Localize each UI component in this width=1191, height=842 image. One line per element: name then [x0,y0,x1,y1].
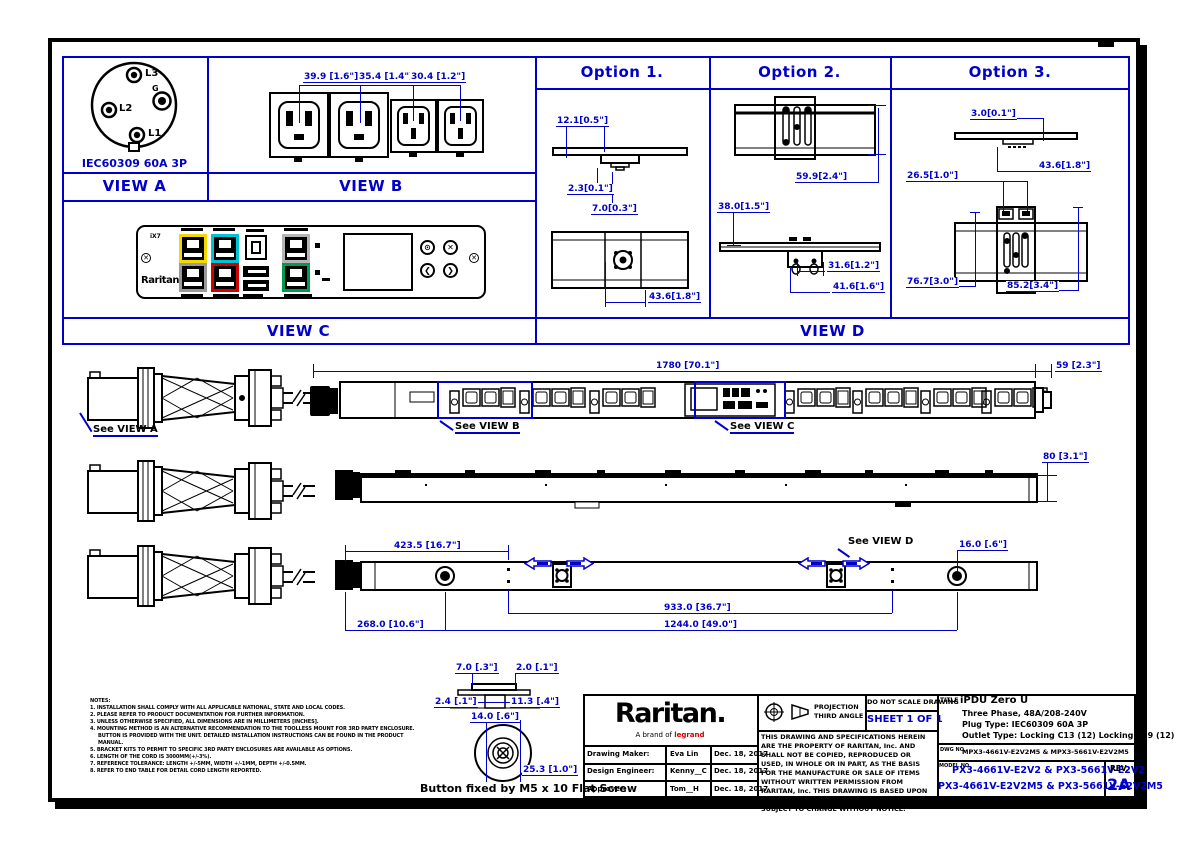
third-angle-projection-icon [764,700,812,724]
approver-label: Approver: [587,785,626,793]
dim-btn-3: 2.4 [.1"] [434,697,478,708]
dim-o3-5: 85.2[3.4"] [1006,281,1059,292]
port-label-bar [213,228,235,231]
panel-tag: iX7 [150,233,161,240]
disclaimer-text: THIS DRAWING AND SPECIFICATIONS HEREIN A… [761,733,935,797]
rev-value: 2A [1107,775,1131,794]
dim-line [970,212,980,213]
dim-line [508,590,509,613]
table-line [535,88,1130,90]
dim-btn-6: 25.3 [1.0"] [522,765,578,776]
table-line [890,56,892,317]
brand-subline: A brand of legrand [583,731,757,739]
dim-o1-1: 12.1[0.5"] [556,116,609,127]
unlock-arrow-icon [798,557,826,570]
approver-value: Tom__H [670,785,699,793]
design-engineer-date: Dec. 18, 2017 [714,767,768,775]
port-label-bar [284,294,312,297]
option2-header: Option 2. [709,58,890,86]
dim-line [345,630,957,631]
dim-end-cap: 59 [2.3"] [1055,361,1102,372]
dim-btn-1: 7.0 [.3"] [455,663,499,674]
port-label-bar [243,294,263,297]
dim-line [566,126,567,158]
sensor-port [211,234,239,263]
title-spec-plug: Plug Type: IEC60309 60A 3P [962,720,1088,729]
dim-line [605,302,645,303]
dim-line [727,245,741,246]
dim-line [797,262,798,276]
rj45-icon [285,266,307,289]
dim-line [997,147,998,172]
port-label-bar [213,294,239,297]
rev-label: REV. [1110,764,1129,773]
title-block-line [865,710,937,712]
note-line: 4. MOUNTING METHOD IS AN ALTERNATIVE REC… [90,726,420,733]
dim-line [878,108,879,183]
dim-line [445,592,446,630]
dim-line [345,545,346,562]
title-block-line [937,760,1136,762]
dim-line [997,171,1038,172]
feature-port [211,263,239,292]
notes-title: NOTES: [90,698,420,705]
title-block-line [710,745,712,798]
option1-header: Option 1. [535,58,709,86]
corner-mark [1098,41,1114,47]
dim-line [515,673,516,685]
pin-l2-label: L2 [119,103,132,114]
title-block-line [937,743,1136,745]
title-label: TITLE [940,697,958,704]
sheet-number: SHEET 1 OF 1 [867,714,937,725]
title-block-line [665,745,667,798]
view-d-label: VIEW D [535,319,1130,343]
dim-line [1073,207,1083,208]
see-view-d-callout: See VIEW D [848,536,913,547]
note-line: 5. BRACKET KITS TO PERMIT TO SPECIFIC 3R… [90,747,420,754]
pin-l3-label: L3 [145,68,158,79]
dim-outlet-pitch-3: 30.4 [1.2"] [410,72,466,83]
see-view-c-callout: See VIEW C [730,421,794,434]
drawing-maker-date: Dec. 18, 2017 [714,750,768,758]
title-block-line [583,780,759,782]
notes-block: NOTES: 1. INSTALLATION SHALL COMPLY WITH… [90,698,420,775]
pdu-top-view-drawing [335,462,1051,510]
rj45-icon [214,237,236,260]
note-line: BUTTON IS PROVIDED WITH THE UNIT. DETAIL… [98,733,420,747]
dim-line [1078,207,1079,291]
dim-line [472,673,473,685]
dim-line [957,550,958,572]
dim-line [299,85,460,86]
rj45-icon [182,266,204,289]
legrand-logo: legrand [674,731,704,739]
port-label-bar [284,228,308,231]
outlets-drawing [269,88,485,164]
dim-line [868,105,886,106]
drawing-title: iPDU Zero U [960,695,1028,706]
approver-date: Dec. 18, 2017 [714,785,768,793]
dim-total-length: 1780 [70.1"] [655,361,720,372]
usb-a-port [243,266,269,277]
dim-line [360,85,361,123]
note-line: 8. REFER TO END TABLE FOR DETAIL CORD LE… [90,768,420,775]
pin-g-label: G [152,84,159,93]
see-view-b-highlight [437,381,533,419]
dim-line [299,85,300,123]
dim-line [486,720,487,782]
dim-line [1027,181,1028,211]
dim-o2-2: 38.0[1.5"] [717,202,770,213]
panel-left-button: ❮ [420,263,435,278]
lock-arrow-icon [842,557,870,570]
dim-line [597,168,598,183]
dim-line [345,592,346,630]
unlock-arrow-icon [524,557,552,570]
plug-assembly-drawing [85,455,315,527]
dim-1244: 1244.0 [49.0"] [663,620,738,631]
dim-o1-4: 43.6[1.8"] [648,292,701,303]
no-scale-label: DO NOT SCALE DRAWING [867,698,937,706]
rj45-icon [285,237,307,260]
dim-line [508,545,509,560]
dim-button-offset: 16.0 [.6"] [958,540,1008,551]
dim-o1-2: 2.3[0.1"] [567,184,614,195]
dim-line [645,290,646,307]
dim-o2-1: 59.9[2.4"] [795,172,848,183]
rj45-icon [182,237,204,260]
see-view-a-callout: See VIEW A [93,424,158,437]
option3-header: Option 3. [890,58,1130,86]
plug-assembly-drawing [85,540,315,612]
table-line [535,56,537,345]
dim-line [605,262,606,307]
dim-line [790,292,830,293]
view-c-label: VIEW C [62,319,535,343]
brand-subline-prefix: A brand of [635,731,671,739]
dim-o2-3: 31.6[1.2"] [827,261,880,272]
dim-depth: 80 [3.1"] [1042,452,1089,463]
screw-icon: ✕ [141,253,151,263]
port-label-bar [181,294,203,297]
title-spec-phase: Three Phase, 48A/208-240V [962,709,1087,718]
dim-line [1043,118,1044,141]
dim-outlet-pitch-1: 39.9 [1.6"] [303,72,359,83]
dim-line [313,364,314,378]
design-engineer-value: Kenny__C [670,767,707,775]
iec60309-plug-face-drawing [90,60,190,160]
usb-b-port [245,235,267,260]
title-block-line [757,730,937,732]
dim-btn-4: 11.3 [.4"] [510,697,560,708]
dim-line [1047,462,1048,502]
port-label-bar [322,278,330,281]
led-indicator [315,270,320,275]
title-block-line [583,763,759,765]
dim-line [892,590,893,613]
view-a-caption: IEC60309 60A 3P [62,155,207,171]
port-label-bar [181,228,203,231]
dim-line [476,702,511,703]
title-spec-outlet: Outlet Type: Locking C13 (12) Locking C1… [962,731,1174,740]
dim-line [957,181,1027,182]
dim-o3-1: 3.0[0.1"] [970,109,1017,120]
dim-o3-4: 76.7[3.0"] [906,277,959,288]
dim-line [460,85,461,121]
pin-l1-label: L1 [148,128,161,139]
dim-line [1051,364,1052,378]
pdu-front-view-drawing [310,378,1055,424]
note-line: 3. UNLESS OTHERWISE SPECIFIED, ALL DIMEN… [90,719,420,726]
port-label-bar [246,229,264,232]
dim-line [413,85,414,121]
note-line: 1. INSTALLATION SHALL COMPLY WITH ALL AP… [90,705,420,712]
pdu-rear-view-drawing [335,556,1051,596]
dim-line [1035,371,1051,372]
drawing-sheet: VIEW A VIEW B VIEW C VIEW D Option 1. Op… [0,0,1191,842]
projection-label-2: THIRD ANGLE [814,712,863,720]
led-indicator [315,243,320,248]
dim-btn-2: 2.0 [.1"] [515,663,559,674]
lcd-display [343,233,413,291]
dim-o3-3: 26.5[1.0"] [906,171,959,182]
dim-line [823,262,824,276]
note-line: 2. PLEASE REFER TO PRODUCT DOCUMENTATION… [90,712,420,719]
drawing-maker-label: Drawing Maker: [587,750,649,758]
title-block-line [583,745,759,747]
panel-brand-logo: Raritan [141,275,179,286]
table-line [709,56,711,317]
dim-line [868,154,886,155]
dim-line [1003,181,1004,211]
dim-line [733,212,734,246]
panel-right-button: ❯ [443,263,458,278]
view-a-label: VIEW A [62,174,207,198]
lock-arrow-icon [566,557,594,570]
rj45-icon [214,266,236,289]
note-line: 7. REFERENCE TOLERANCE: LENGTH +/-5MM, W… [90,761,420,768]
dim-line [520,720,521,782]
dim-outlet-pitch-2: 35.4 [1.4"] [358,72,414,83]
table-line [62,200,535,202]
dim-btn-5: 14.0 [.6"] [470,712,520,723]
dwg-no-value: MPX3-4661V-E2V2M5 & MPX3-5661V-E2V2M5 [962,748,1129,756]
dim-o3-2: 43.6[1.8"] [1038,161,1091,172]
dim-line [790,267,791,293]
drawing-maker-value: Eva Lin [670,750,698,758]
panel-menu-button: ⊙ [420,240,435,255]
ethernet-port [179,234,207,263]
ethernet-port [179,263,207,292]
panel-cancel-button: ✕ [443,240,458,255]
dim-o2-4: 41.6[1.6"] [832,282,885,293]
see-view-b-callout: See VIEW B [455,421,520,434]
dim-line [975,212,976,287]
usb-a-port [243,280,269,291]
usb-b-icon [251,241,261,254]
dim-line [604,126,605,152]
expansion-port [282,263,310,292]
dim-268: 268.0 [10.6"] [356,620,425,631]
see-view-c-highlight [694,381,786,419]
projection-label-1: PROJECTION [814,703,859,711]
dim-line [848,182,878,183]
console-port [282,234,310,263]
view-b-label: VIEW B [207,174,535,198]
dim-line [957,592,958,630]
screw-icon: ✕ [469,253,479,263]
dim-423: 423.5 [16.7"] [393,541,462,552]
note-line: 6. LENGTH OF THE CORD IS 3000MM(+/-3%). [90,754,420,761]
dim-o1-3: 7.0[0.3"] [591,204,638,215]
dim-933: 933.0 [36.7"] [663,603,732,614]
dim-line [797,271,825,272]
design-engineer-label: Design Engineer: [587,767,654,775]
raritan-logo: Raritan. [583,698,757,729]
